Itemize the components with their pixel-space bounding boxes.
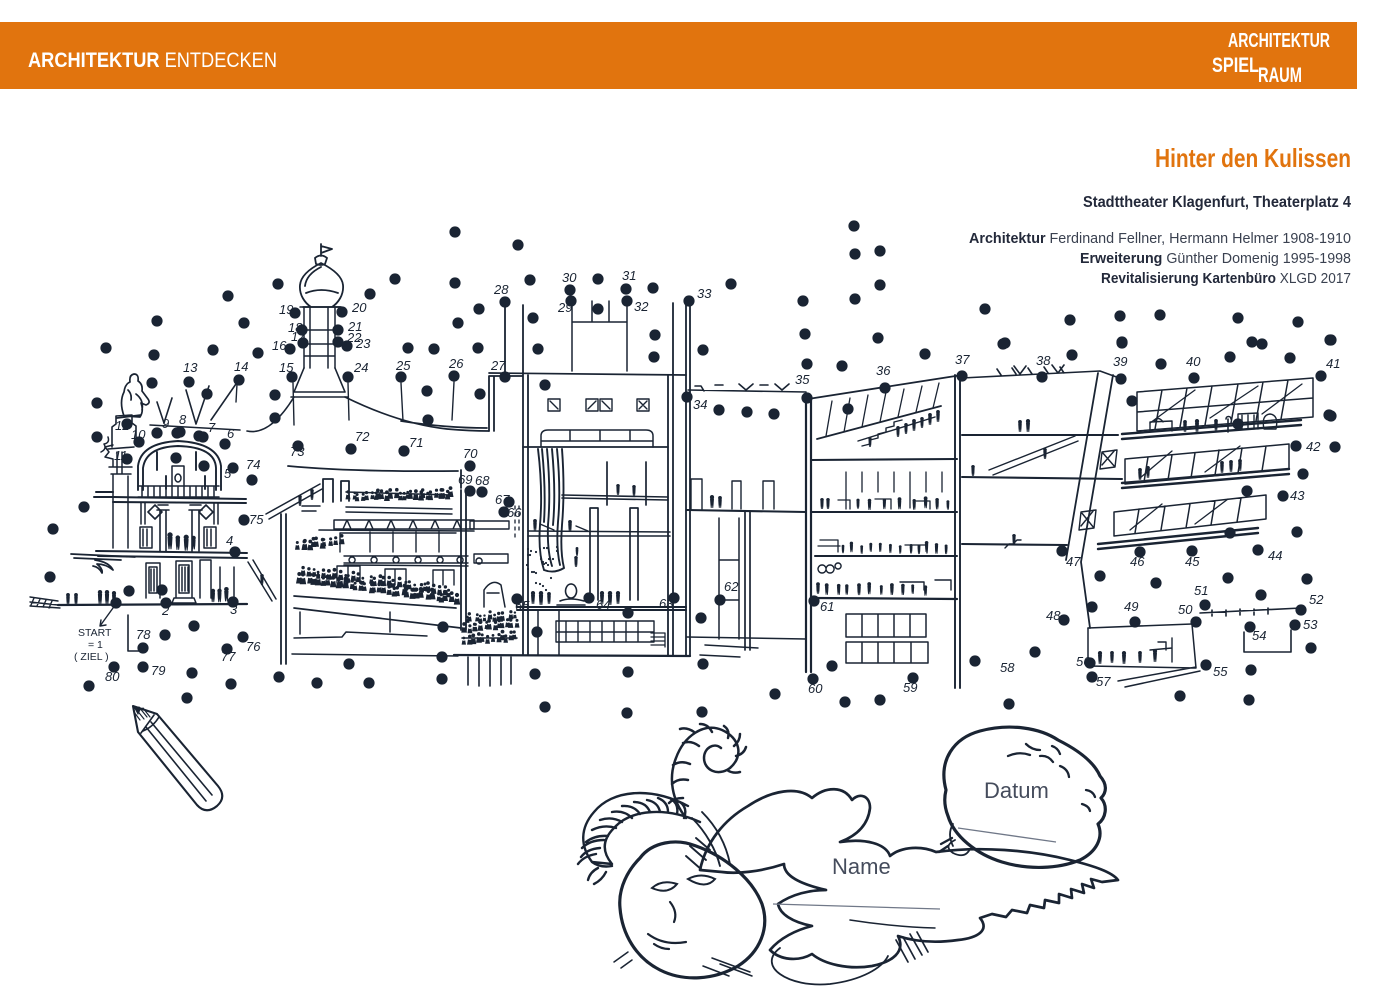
svg-text:63: 63 bbox=[659, 596, 674, 611]
svg-text:25: 25 bbox=[395, 358, 411, 373]
svg-text:6: 6 bbox=[227, 426, 235, 441]
svg-text:15: 15 bbox=[279, 360, 294, 375]
svg-text:5: 5 bbox=[224, 466, 232, 481]
svg-text:( ZIEL ): ( ZIEL ) bbox=[74, 651, 109, 663]
svg-text:39: 39 bbox=[1113, 354, 1127, 369]
svg-text:41: 41 bbox=[1326, 356, 1340, 371]
svg-text:49: 49 bbox=[1124, 599, 1138, 614]
svg-text:Hinter den Kulissen: Hinter den Kulissen bbox=[1155, 143, 1351, 173]
svg-text:67: 67 bbox=[495, 492, 510, 507]
svg-text:47: 47 bbox=[1066, 554, 1081, 569]
svg-text:61: 61 bbox=[820, 599, 834, 614]
svg-text:7: 7 bbox=[208, 420, 216, 435]
svg-text:60: 60 bbox=[808, 681, 823, 696]
svg-text:31: 31 bbox=[622, 268, 636, 283]
svg-text:51: 51 bbox=[1194, 583, 1208, 598]
svg-text:79: 79 bbox=[151, 663, 165, 678]
svg-text:34: 34 bbox=[693, 397, 707, 412]
svg-text:23: 23 bbox=[355, 336, 371, 351]
svg-text:76: 76 bbox=[246, 639, 261, 654]
svg-text:72: 72 bbox=[355, 429, 370, 444]
svg-text:64: 64 bbox=[596, 597, 610, 612]
svg-text:RAUM: RAUM bbox=[1258, 64, 1302, 87]
svg-text:37: 37 bbox=[955, 352, 970, 367]
svg-text:24: 24 bbox=[353, 360, 368, 375]
svg-text:ARCHITEKTUR ENTDECKEN: ARCHITEKTUR ENTDECKEN bbox=[28, 49, 277, 72]
svg-text:68: 68 bbox=[475, 473, 490, 488]
svg-text:8: 8 bbox=[179, 412, 187, 427]
svg-text:Name: Name bbox=[832, 854, 891, 879]
svg-text:32: 32 bbox=[634, 299, 649, 314]
svg-text:52: 52 bbox=[1309, 592, 1324, 607]
svg-text:4: 4 bbox=[226, 533, 233, 548]
svg-text:55: 55 bbox=[1213, 664, 1228, 679]
svg-text:48: 48 bbox=[1046, 608, 1061, 623]
svg-text:56: 56 bbox=[1076, 654, 1091, 669]
svg-text:43: 43 bbox=[1290, 488, 1305, 503]
svg-text:46: 46 bbox=[1130, 554, 1145, 569]
svg-text:69: 69 bbox=[458, 472, 472, 487]
svg-text:75: 75 bbox=[249, 512, 264, 527]
svg-text:77: 77 bbox=[221, 649, 236, 664]
svg-text:11: 11 bbox=[114, 448, 128, 463]
svg-text:78: 78 bbox=[136, 627, 151, 642]
svg-text:10: 10 bbox=[131, 427, 146, 442]
svg-text:20: 20 bbox=[351, 300, 367, 315]
svg-text:14: 14 bbox=[234, 359, 248, 374]
svg-text:80: 80 bbox=[105, 669, 120, 684]
svg-text:Architektur Ferdinand Fellner,: Architektur Ferdinand Fellner, Hermann H… bbox=[969, 231, 1351, 247]
svg-text:62: 62 bbox=[724, 579, 739, 594]
svg-text:59: 59 bbox=[903, 680, 917, 695]
svg-text:18: 18 bbox=[288, 320, 303, 335]
svg-text:42: 42 bbox=[1306, 439, 1321, 454]
svg-text:13: 13 bbox=[183, 360, 198, 375]
svg-text:ARCHITEKTUR: ARCHITEKTUR bbox=[1228, 30, 1330, 52]
svg-text:9: 9 bbox=[162, 416, 169, 431]
svg-text:19: 19 bbox=[279, 302, 293, 317]
svg-text:35: 35 bbox=[795, 372, 810, 387]
svg-text:Erweiterung Günther Domenig 19: Erweiterung Günther Domenig 1995-1998 bbox=[1080, 251, 1351, 267]
svg-text:74: 74 bbox=[246, 457, 260, 472]
svg-text:16: 16 bbox=[272, 338, 287, 353]
svg-text:50: 50 bbox=[1178, 602, 1193, 617]
svg-text:73: 73 bbox=[290, 444, 305, 459]
svg-text:36: 36 bbox=[876, 363, 891, 378]
svg-text:40: 40 bbox=[1186, 354, 1201, 369]
svg-text:SPIEL: SPIEL bbox=[1212, 54, 1259, 77]
svg-text:30: 30 bbox=[562, 270, 577, 285]
svg-text:START: START bbox=[78, 627, 112, 639]
svg-text:38: 38 bbox=[1036, 353, 1051, 368]
svg-text:45: 45 bbox=[1185, 554, 1200, 569]
svg-text:2: 2 bbox=[161, 603, 170, 618]
svg-text:3: 3 bbox=[230, 602, 238, 617]
svg-text:12: 12 bbox=[115, 418, 130, 433]
svg-text:= 1: = 1 bbox=[88, 639, 103, 651]
svg-text:65: 65 bbox=[515, 598, 530, 613]
svg-text:27: 27 bbox=[490, 358, 506, 373]
svg-text:26: 26 bbox=[448, 356, 464, 371]
svg-text:33: 33 bbox=[697, 286, 712, 301]
svg-text:Revitalisierung Kartenbüro XLG: Revitalisierung Kartenbüro XLGD 2017 bbox=[1101, 271, 1351, 287]
svg-text:28: 28 bbox=[493, 282, 509, 297]
svg-text:29: 29 bbox=[557, 300, 572, 315]
svg-text:57: 57 bbox=[1096, 674, 1111, 689]
svg-text:71: 71 bbox=[409, 435, 423, 450]
svg-text:Stadttheater Klagenfurt, Theat: Stadttheater Klagenfurt, Theaterplatz 4 bbox=[1083, 194, 1351, 211]
svg-text:44: 44 bbox=[1268, 548, 1282, 563]
svg-text:53: 53 bbox=[1303, 617, 1318, 632]
svg-text:70: 70 bbox=[463, 446, 478, 461]
svg-text:58: 58 bbox=[1000, 660, 1015, 675]
svg-text:54: 54 bbox=[1252, 628, 1266, 643]
svg-text:Datum: Datum bbox=[984, 778, 1049, 803]
